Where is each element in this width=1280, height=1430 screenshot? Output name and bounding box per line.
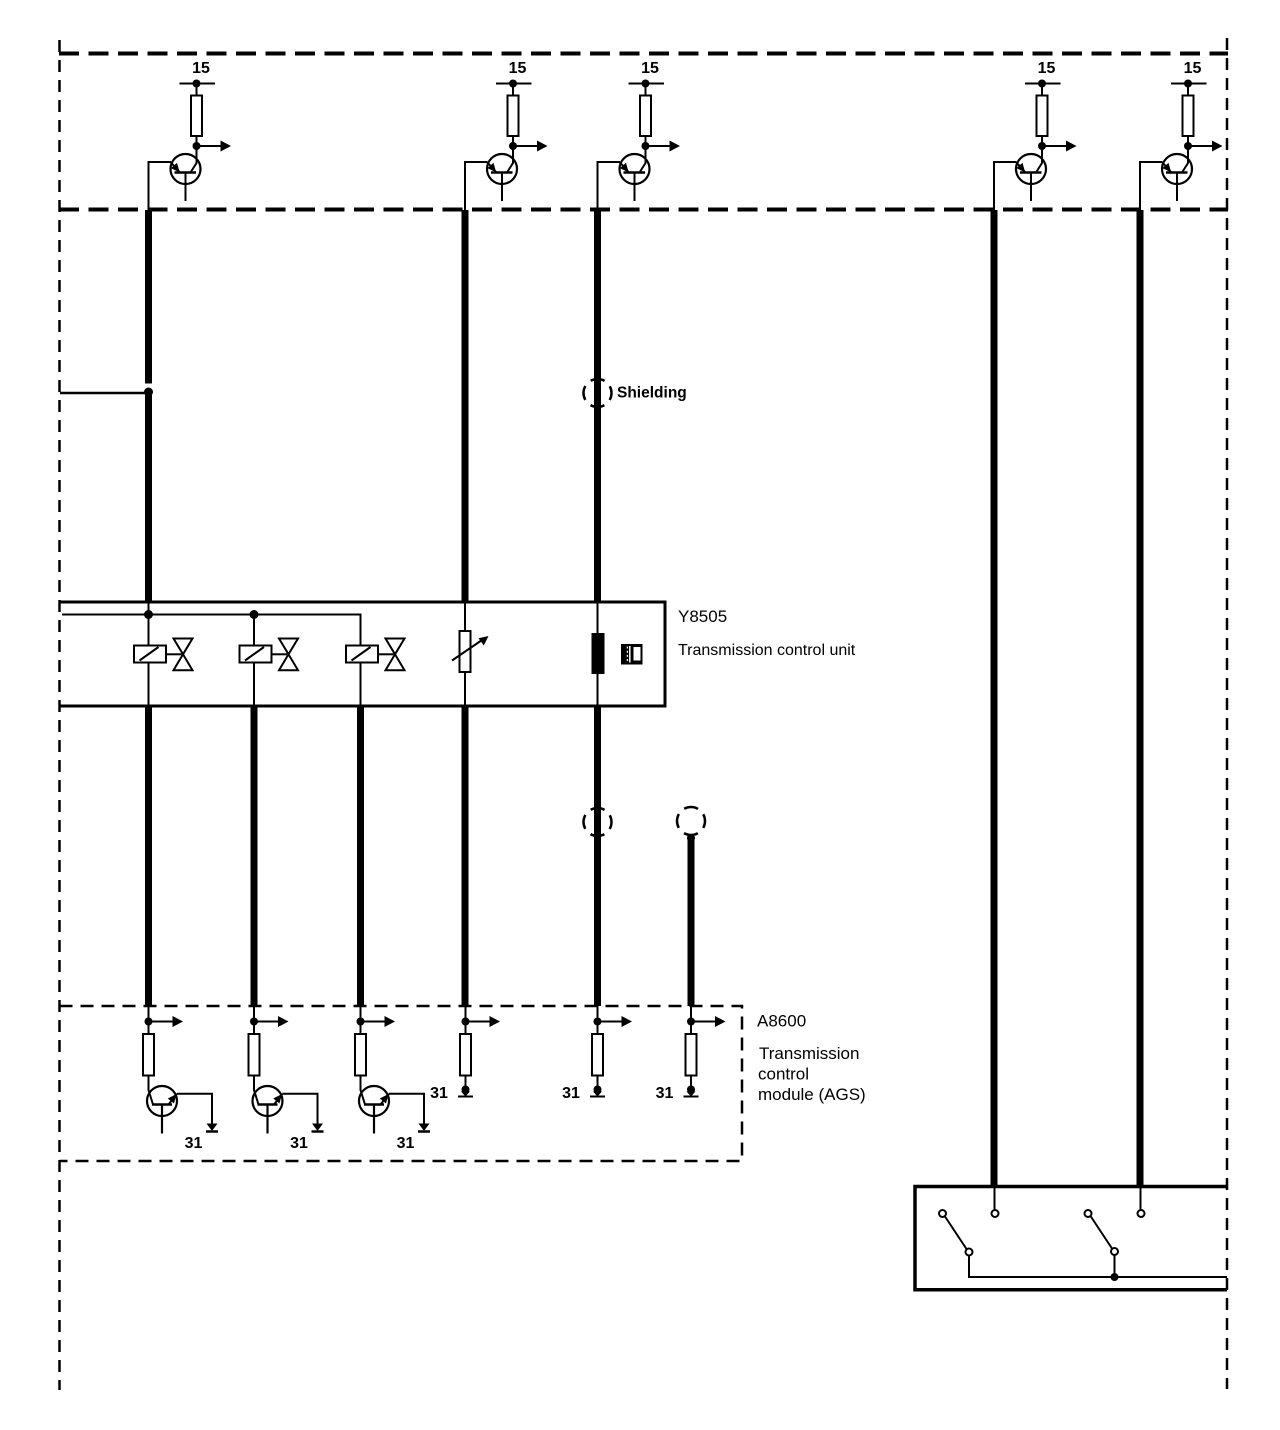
svg-text:15: 15: [509, 60, 527, 77]
svg-text:A8600: A8600: [757, 1012, 806, 1031]
svg-text:31: 31: [430, 1085, 448, 1102]
svg-text:Y8505: Y8505: [678, 607, 727, 626]
svg-text:Transmission control unit: Transmission control unit: [678, 642, 856, 659]
svg-text:31: 31: [656, 1085, 674, 1102]
svg-text:control: control: [758, 1065, 809, 1084]
svg-text:Shielding: Shielding: [617, 385, 687, 402]
svg-text:31: 31: [290, 1135, 308, 1152]
svg-text:15: 15: [1184, 60, 1202, 77]
svg-text:15: 15: [1038, 60, 1056, 77]
svg-text:15: 15: [192, 60, 210, 77]
svg-text:31: 31: [185, 1135, 203, 1152]
svg-text:31: 31: [562, 1085, 580, 1102]
svg-text:Transmission: Transmission: [759, 1044, 859, 1063]
svg-text:15: 15: [641, 60, 659, 77]
svg-text:module (AGS): module (AGS): [758, 1085, 866, 1104]
svg-text:31: 31: [397, 1135, 415, 1152]
